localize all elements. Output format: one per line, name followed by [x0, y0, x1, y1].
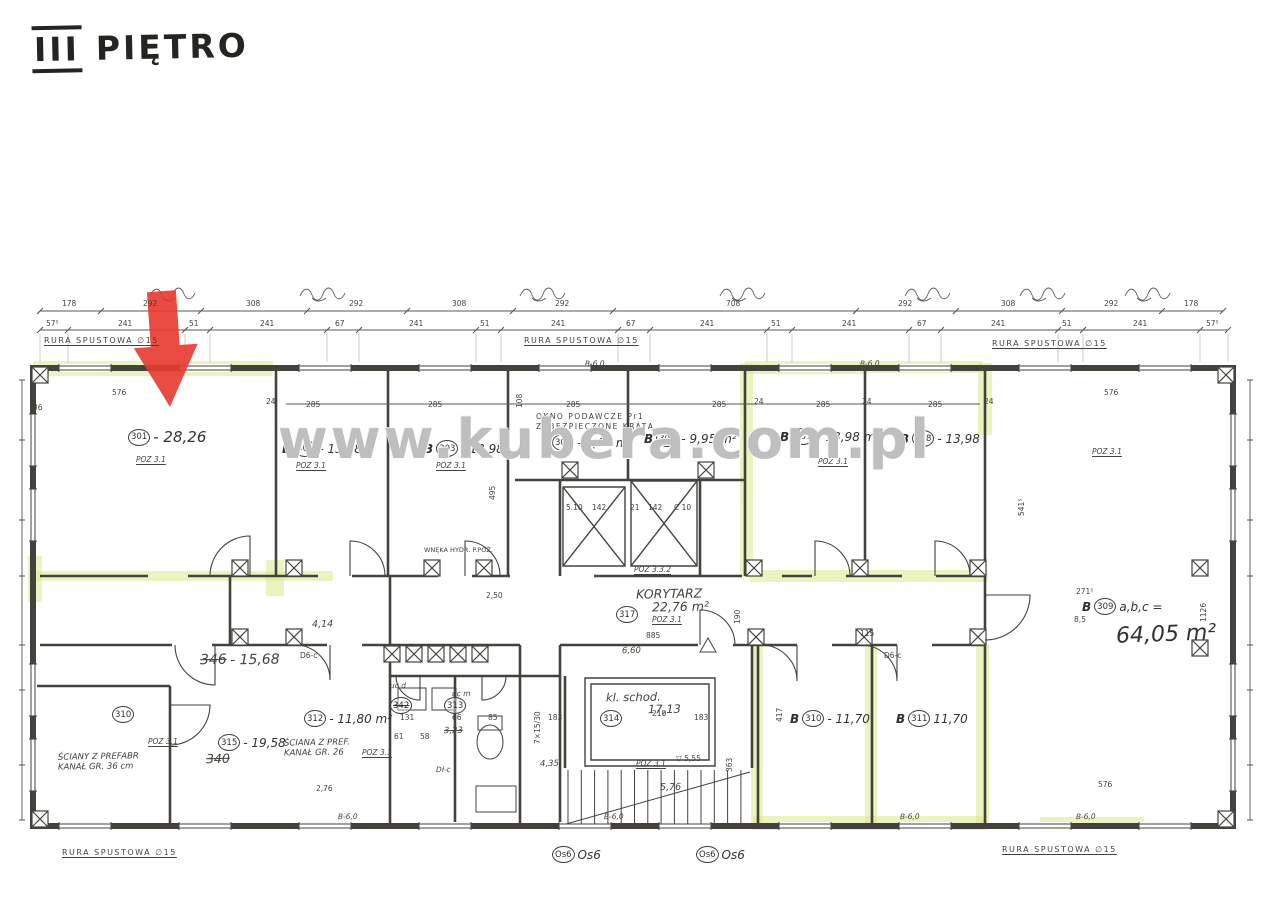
plan-label-39: B-6,0 [1076, 813, 1096, 821]
plan-label-1: RURA SPUSTOWA ∅15 [524, 337, 639, 345]
plan-label-52: 285 [428, 401, 442, 409]
plan-label-34: 5,76 [660, 783, 681, 793]
room-number-circle: 342 [390, 697, 412, 714]
room-number-circle: 301 [128, 429, 150, 446]
plan-label-72: 2,50 [486, 592, 503, 600]
room-area: - 13,98 [461, 442, 504, 456]
room-prefix: B [1082, 600, 1091, 614]
room-number-circle: Os6 [696, 846, 719, 863]
room-number-circle: 311 [908, 710, 930, 727]
plan-label-38: B-6,0 [900, 813, 920, 821]
room-number-circle: 313 [444, 697, 466, 714]
dim-row1-6: 708 [726, 300, 740, 308]
plan-label-67: 61 [394, 733, 404, 741]
room-number-circle: 317 [616, 606, 638, 623]
room-number-circle: 315 [218, 734, 240, 751]
plan-label-65: 183 [548, 714, 562, 722]
plan-label-57: 24 [266, 398, 276, 406]
plan-label-48: 576 [112, 389, 126, 397]
plan-label-5: OKNO PODAWCZE Pr1 [536, 413, 644, 421]
dim-row2-0: 57⁵ [46, 320, 59, 328]
shafts-and-dim-lines [563, 481, 715, 766]
plan-label-32: 4,35 [540, 760, 559, 769]
dim-row2-6: 51 [480, 320, 490, 328]
room-number-circle: 308 [912, 430, 934, 447]
room-prefix: B [780, 430, 789, 444]
room-label-303: B303- 13,98 [424, 440, 504, 457]
room-number-circle: 312 [304, 710, 326, 727]
room-number-circle: 304 [552, 434, 574, 451]
plan-label-71: 115 [860, 630, 874, 638]
room-label-310: 310 [112, 706, 134, 723]
plan-label-15: POZ 3.1 [818, 458, 848, 466]
dim-row2-16: 57⁵ [1206, 320, 1219, 328]
room-number-circle: Os6 [552, 846, 575, 863]
plan-label-29: 340 [206, 753, 230, 766]
plan-label-11: KANAŁ GR. 26 [284, 748, 344, 758]
plan-label-86: 495 [489, 486, 497, 500]
plan-label-70: 85 [488, 714, 498, 722]
room-label-312: 312- 11,80 m² [304, 710, 392, 727]
dim-row2-12: 67 [917, 320, 927, 328]
plan-label-2: RURA SPUSTOWA ∅15 [992, 340, 1107, 348]
plan-label-3: RURA SPUSTOWA ∅15 [62, 849, 177, 857]
plan-label-83: 190 [734, 610, 742, 624]
room-number-circle: 310 [802, 710, 824, 727]
room-area: 11,70 [933, 712, 967, 726]
dim-row2-4: 67 [335, 320, 345, 328]
plan-label-40: B-6,0 [585, 360, 605, 368]
plan-label-20: POZ 3.1 [636, 760, 666, 768]
dim-row2-2: 51 [189, 320, 199, 328]
plan-label-69: 66 [452, 714, 462, 722]
room-number-circle: 302 [294, 440, 316, 457]
room-label-Os6: Os6Os6 [696, 846, 745, 863]
dim-row1-1: 292 [143, 300, 157, 308]
room-area: - 9,60 m² [577, 436, 632, 450]
room-number-circle: 307 [792, 428, 814, 445]
room-number-circle: 309 [1094, 598, 1116, 615]
room-label-315: 315- 19,58 [218, 734, 286, 751]
room-area: Os6 [578, 848, 601, 862]
plan-label-77: 21 [630, 504, 640, 512]
room-label-306: B306- 9,95 m² [644, 430, 737, 447]
plan-label-41: B-6,0 [860, 360, 880, 368]
plan-label-9: KANAŁ GR. 36 cm [58, 762, 134, 772]
plan-label-73: 271⁵ [1076, 588, 1093, 596]
dim-row2-13: 241 [991, 320, 1005, 328]
floor-plan-drawing [0, 0, 1280, 905]
dim-row2-5: 241 [409, 320, 423, 328]
plan-label-19: POZ 3.1 [362, 749, 392, 757]
dim-row1-4: 308 [452, 300, 466, 308]
room-area: - 9,95 m² [681, 432, 736, 446]
dim-row1-5: 292 [555, 300, 569, 308]
plan-label-46: D6-c [884, 652, 901, 660]
room-label-307: B307- 13,98 m² [780, 428, 880, 445]
plan-label-87: 7×15/30 [534, 711, 542, 744]
plan-label-16: POZ 3.1 [1092, 448, 1122, 456]
plan-label-27: 346 [200, 653, 227, 667]
dim-row2-15: 241 [1133, 320, 1147, 328]
plan-label-37: B-6,0 [604, 813, 624, 821]
plan-label-84: 108 [516, 394, 524, 408]
room-label-342: 342 [390, 697, 412, 714]
plan-label-80: 417 [776, 708, 784, 722]
dim-row2-7: 241 [551, 320, 565, 328]
plan-label-63: 210 [652, 710, 666, 718]
dim-row2-1: 241 [118, 320, 132, 328]
room-area: a,b,c = [1119, 600, 1162, 614]
room-area: - 13,98 [319, 442, 362, 456]
room-number-circle: 303 [436, 440, 458, 457]
room-number-circle: 314 [600, 710, 622, 727]
plan-label-74: 8,5 [1074, 616, 1086, 624]
plan-label-66: 131 [400, 714, 414, 722]
plan-label-68: 58 [420, 733, 430, 741]
plan-label-75: 5.10 [566, 504, 583, 512]
room-prefix: B [896, 712, 905, 726]
plan-label-35: 2,76 [316, 785, 333, 793]
plan-label-36: B-6,0 [338, 813, 358, 821]
plan-label-30: 3,23 [444, 727, 463, 736]
plan-label-78: 142 [648, 504, 662, 512]
plan-label-59: 24 [862, 398, 872, 406]
plan-label-81: 1126 [1200, 603, 1208, 622]
plan-label-62: 885 [646, 632, 660, 640]
dim-row2-14: 51 [1062, 320, 1072, 328]
room-area: Os6 [722, 848, 745, 862]
plan-label-45: D6-c [300, 652, 317, 660]
red-arrow-marker [130, 289, 202, 409]
room-number-circle: 310 [112, 706, 134, 723]
plan-label-26: 64,05 m² [1116, 622, 1217, 647]
plan-label-55: 285 [816, 401, 830, 409]
room-label-302: B302- 13,98 [282, 440, 362, 457]
dim-row2-9: 241 [700, 320, 714, 328]
plan-label-49: 576 [1104, 389, 1118, 397]
room-label-309: B309a,b,c = [1082, 598, 1162, 615]
dim-row2-3: 241 [260, 320, 274, 328]
plan-label-6: ZABEZPIECZONE KRATĄ [536, 423, 654, 431]
room-area: - 19,58 [243, 736, 286, 750]
plan-label-53: 285 [566, 401, 580, 409]
dim-row1-9: 292 [1104, 300, 1118, 308]
plan-label-61: 36 [33, 404, 43, 412]
plan-label-7: WNĘKA HYDR. P.POŻ. [424, 547, 493, 554]
dim-row2-8: 67 [626, 320, 636, 328]
room-label-317: 317 [616, 606, 638, 623]
dim-row2-10: 51 [771, 320, 781, 328]
plan-label-14: POZ 3.1 [436, 462, 466, 470]
plan-label-51: 285 [306, 401, 320, 409]
room-area: - 11,70 [827, 712, 870, 726]
plan-label-0: RURA SPUSTOWA ∅15 [44, 337, 159, 345]
room-area: - 13,98 [937, 432, 980, 446]
room-area: - 28,26 [153, 428, 206, 446]
plan-label-79: C 10 [674, 504, 691, 512]
dim-row1-3: 292 [349, 300, 363, 308]
plan-label-82: 363 [726, 758, 734, 772]
room-prefix: B [644, 432, 653, 446]
room-prefix: B [900, 432, 909, 446]
room-label-310: B310- 11,70 [790, 710, 870, 727]
plan-label-12: POZ 3.1 [136, 456, 166, 464]
room-area: - 11,80 m² [329, 712, 392, 726]
dim-row1-8: 308 [1001, 300, 1015, 308]
room-prefix: B [282, 442, 291, 456]
plan-label-76: 142 [592, 504, 606, 512]
plan-label-85: 541⁵ [1018, 499, 1026, 516]
plan-label-47: ▽ 5,55 [676, 755, 701, 763]
plan-label-4: RURA SPUSTOWA ∅15 [1002, 846, 1117, 854]
plan-label-21: POZ 3.3.2 [634, 566, 671, 574]
dim-row1-10: 178 [1184, 300, 1198, 308]
room-label-308: B308- 13,98 [900, 430, 980, 447]
dim-row1-0: 178 [62, 300, 76, 308]
room-label-314: 314 [600, 710, 622, 727]
scanned-floor-plan-page: IIIPIĘTRO www.kubera.com.pl RURA SPUSTOW… [0, 0, 1280, 905]
plan-label-44: Dł-c [436, 766, 451, 774]
dim-row1-2: 308 [246, 300, 260, 308]
plan-label-58: 24 [754, 398, 764, 406]
plan-label-13: POZ 3.1 [296, 462, 326, 470]
plan-label-54: 285 [712, 401, 726, 409]
plan-label-28: - 15,68 [230, 653, 280, 668]
dim-row2-11: 241 [842, 320, 856, 328]
room-area: - 13,98 m² [817, 430, 880, 444]
plan-label-23: 22,76 m² [652, 601, 709, 614]
plan-label-31: 4,14 [312, 620, 333, 630]
room-label-311: B31111,70 [896, 710, 968, 727]
room-label-301: 301- 28,26 [128, 428, 206, 446]
plan-label-17: POZ 3.1 [652, 616, 682, 624]
room-label-304: 304- 9,60 m² [552, 434, 632, 451]
plan-label-42: uc d [390, 682, 406, 690]
dim-row1-7: 292 [898, 300, 912, 308]
plan-label-64: 183 [694, 714, 708, 722]
plan-label-18: POZ 3.1 [148, 738, 178, 746]
room-label-Os6: Os6Os6 [552, 846, 601, 863]
room-label-313: 313 [444, 697, 466, 714]
room-number-circle: 306 [656, 430, 678, 447]
room-prefix: B [790, 712, 799, 726]
plan-label-33: 6,60 [622, 647, 641, 656]
room-prefix: B [424, 442, 433, 456]
plan-label-56: 285 [928, 401, 942, 409]
plan-label-50: 576 [1098, 781, 1112, 789]
plan-label-60: 24 [984, 398, 994, 406]
